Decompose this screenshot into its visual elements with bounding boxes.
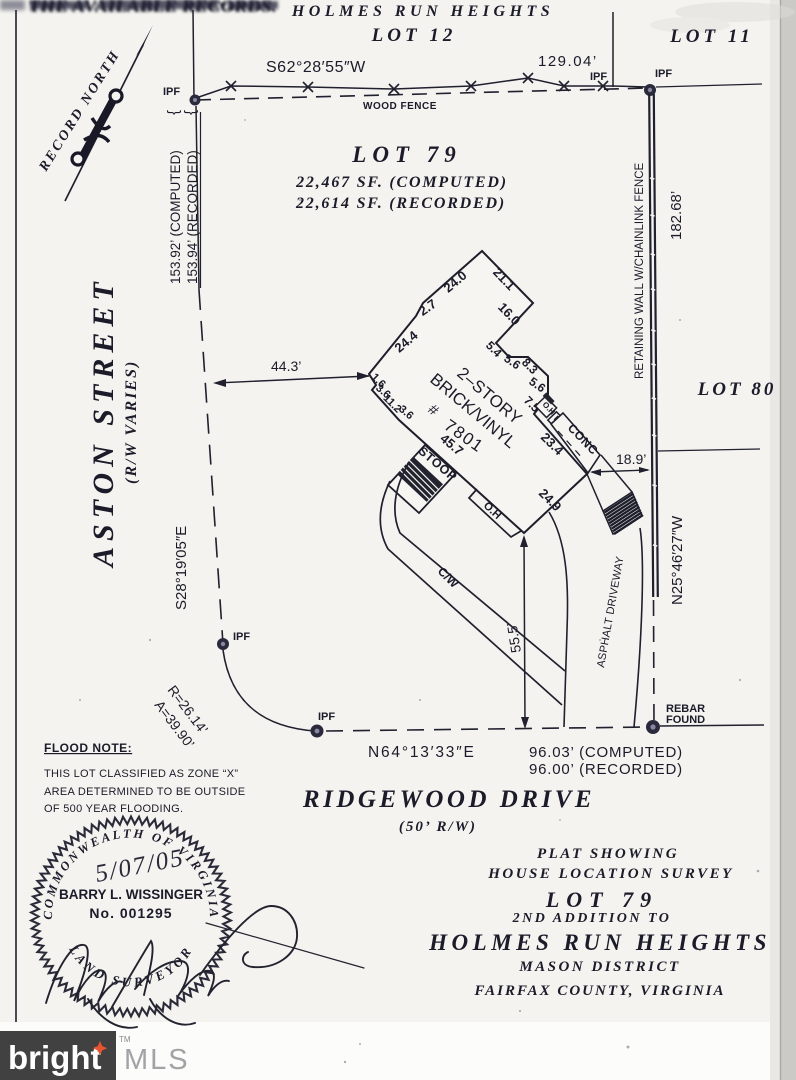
svg-text:No. 001295: No. 001295 (89, 905, 172, 921)
svg-text:IPF: IPF (318, 711, 335, 723)
svg-text:HOUSE LOCATION SURVEY: HOUSE LOCATION SURVEY (487, 866, 734, 882)
svg-text:ASTON STREET: ASTON STREET (87, 276, 120, 569)
svg-text:44.3’: 44.3’ (271, 358, 301, 374)
svg-text:2ND ADDITION TO: 2ND ADDITION TO (512, 911, 672, 926)
svg-text:RIDGEWOOD DRIVE: RIDGEWOOD DRIVE (302, 786, 595, 813)
svg-text:AREA DETERMINED TO BE OUTS: AREA DETERMINED TO BE OUTSIDE (44, 786, 245, 798)
svg-text:96.03’ (COMPUTED): 96.03’ (COMPUTED) (529, 744, 683, 761)
svg-text:FLOOD NOTE:: FLOOD NOTE: (44, 741, 132, 755)
svg-text:HOLMES RUN HEIGHTS: HOLMES RUN HEIGHTS (428, 930, 771, 955)
svg-text:WOOD FENCE: WOOD FENCE (363, 101, 437, 112)
svg-text:THIS LOT CLASSIFIED AS ZON: THIS LOT CLASSIFIED AS ZONE “X” (44, 768, 238, 780)
svg-text:182.68’: 182.68’ (668, 191, 685, 240)
svg-text:FOUND: FOUND (666, 714, 705, 726)
svg-text:N25°46′27″W: N25°46′27″W (669, 515, 686, 605)
svg-text:S28°19′05″E: S28°19′05″E (173, 526, 190, 610)
svg-text:(50’ R/W): (50’ R/W) (399, 819, 477, 835)
svg-text:96.00’ (RECORDED): 96.00’ (RECORDED) (529, 761, 683, 778)
svg-text:LOT 11: LOT 11 (669, 26, 754, 47)
svg-text:FAIRFAX COUNTY, VIRGINIA: FAIRFAX COUNTY, VIRGINIA (473, 983, 725, 999)
svg-text:{: { (165, 110, 182, 115)
svg-text:MASON DISTRICT: MASON DISTRICT (518, 959, 680, 975)
svg-text:TM: TM (119, 1035, 131, 1044)
svg-text:LOT 79: LOT 79 (351, 142, 461, 167)
svg-text:OF 500 YEAR FLOODING.: OF 500 YEAR FLOODING. (44, 803, 183, 815)
svg-text:153.92’ (COMPUTED): 153.92’ (COMPUTED) (168, 150, 183, 284)
svg-text:HOLMES RUN HEIGHTS: HOLMES RUN HEIGHTS (291, 3, 554, 20)
svg-text:bright: bright (8, 1039, 101, 1076)
svg-text:LOT 12: LOT 12 (371, 25, 457, 46)
svg-text:MLS: MLS (124, 1044, 190, 1076)
svg-text:PLAT SHOWING: PLAT SHOWING (537, 846, 679, 862)
svg-text:LOT 79: LOT 79 (545, 887, 658, 912)
svg-text:S62°28′55″W: S62°28′55″W (266, 59, 366, 76)
svg-text:IPF: IPF (655, 68, 672, 80)
svg-text:18.9’: 18.9’ (616, 451, 646, 467)
svg-text:(R/W VARIES): (R/W VARIES) (123, 360, 140, 484)
svg-text:IPF: IPF (233, 631, 250, 643)
svg-text:22,467 SF. (COMPUTED): 22,467 SF. (COMPUTED) (295, 174, 508, 191)
svg-text:IPF: IPF (590, 71, 607, 83)
svg-text:LOT 80: LOT 80 (697, 379, 777, 400)
svg-text:129.04’: 129.04’ (538, 53, 598, 70)
svg-text:22,614 SF. (RECORDED): 22,614 SF. (RECORDED) (295, 195, 506, 212)
svg-text:N64°13′33″E: N64°13′33″E (368, 744, 476, 761)
svg-text:BARRY L. WISSINGER: BARRY L. WISSINGER (59, 887, 203, 902)
svg-text:RETAINING WALL W/CHAINLINK: RETAINING WALL W/CHAINLINK FENCE (634, 162, 646, 379)
svg-text:IPF: IPF (163, 86, 180, 98)
